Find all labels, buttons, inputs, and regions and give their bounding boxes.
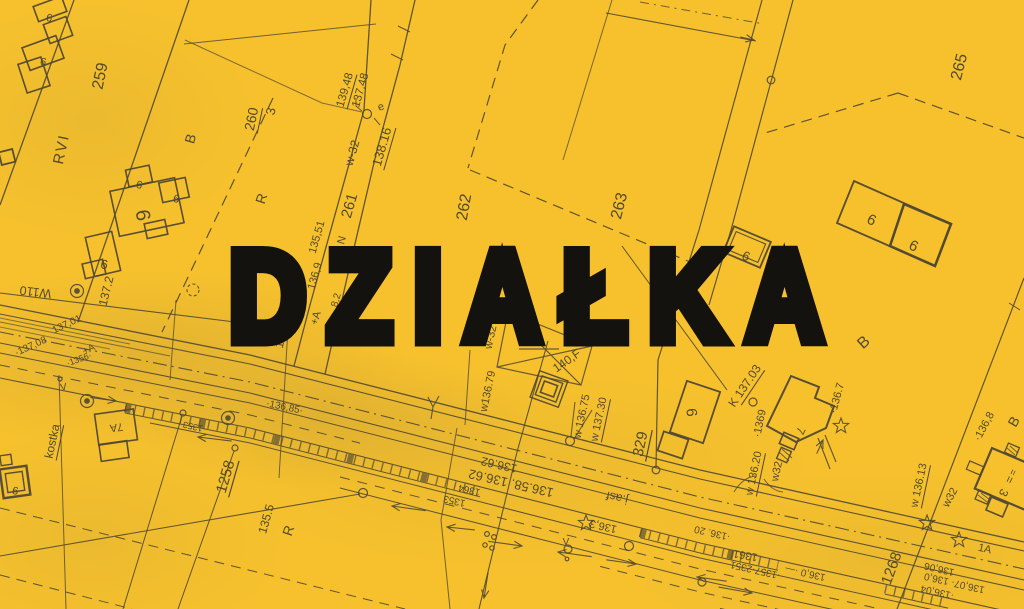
svg-text:DZIAŁKA: DZIAŁKA (229, 225, 844, 367)
